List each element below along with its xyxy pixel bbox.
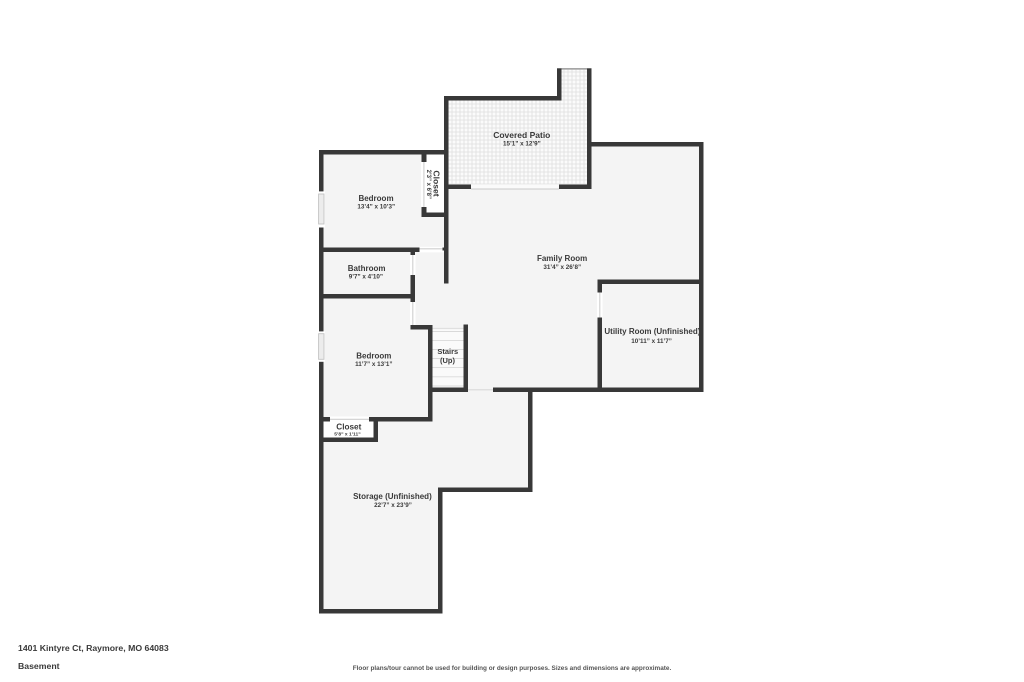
- svg-text:15’1” x 12’9”: 15’1” x 12’9”: [503, 140, 541, 147]
- svg-text:31’4” x 26’8”: 31’4” x 26’8”: [543, 264, 581, 271]
- svg-text:10’11” x 11’7”: 10’11” x 11’7”: [631, 338, 672, 345]
- svg-text:Family Room: Family Room: [537, 254, 587, 263]
- svg-text:Bedroom: Bedroom: [358, 194, 393, 203]
- svg-text:Basement: Basement: [18, 661, 60, 671]
- svg-text:Stairs: Stairs: [437, 347, 458, 356]
- svg-text:5’8” x 1’11”: 5’8” x 1’11”: [334, 431, 361, 437]
- svg-text:(Up): (Up): [440, 356, 455, 365]
- svg-text:9’7” x 4’10”: 9’7” x 4’10”: [349, 274, 383, 281]
- svg-text:Closet: Closet: [431, 170, 441, 196]
- svg-text:Storage (Unfinished): Storage (Unfinished): [353, 492, 432, 501]
- svg-text:22’7” x 23’9”: 22’7” x 23’9”: [374, 502, 412, 509]
- svg-text:Floor plans/tour cannot be use: Floor plans/tour cannot be used for buil…: [353, 665, 672, 672]
- svg-text:Covered Patio: Covered Patio: [493, 130, 550, 140]
- svg-text:11’7” x 13’1”: 11’7” x 13’1”: [355, 361, 392, 368]
- svg-text:2’3” x 6’8”: 2’3” x 6’8”: [425, 170, 431, 199]
- svg-text:Bedroom: Bedroom: [356, 352, 391, 361]
- svg-text:Utility Room (Unfinished): Utility Room (Unfinished): [604, 327, 700, 336]
- svg-text:13’4” x 10’3”: 13’4” x 10’3”: [357, 204, 395, 211]
- svg-text:Bathroom: Bathroom: [348, 264, 386, 273]
- svg-text:Closet: Closet: [336, 422, 361, 431]
- svg-text:1401 Kintyre Ct, Raymore, MO 6: 1401 Kintyre Ct, Raymore, MO 64083: [18, 643, 169, 653]
